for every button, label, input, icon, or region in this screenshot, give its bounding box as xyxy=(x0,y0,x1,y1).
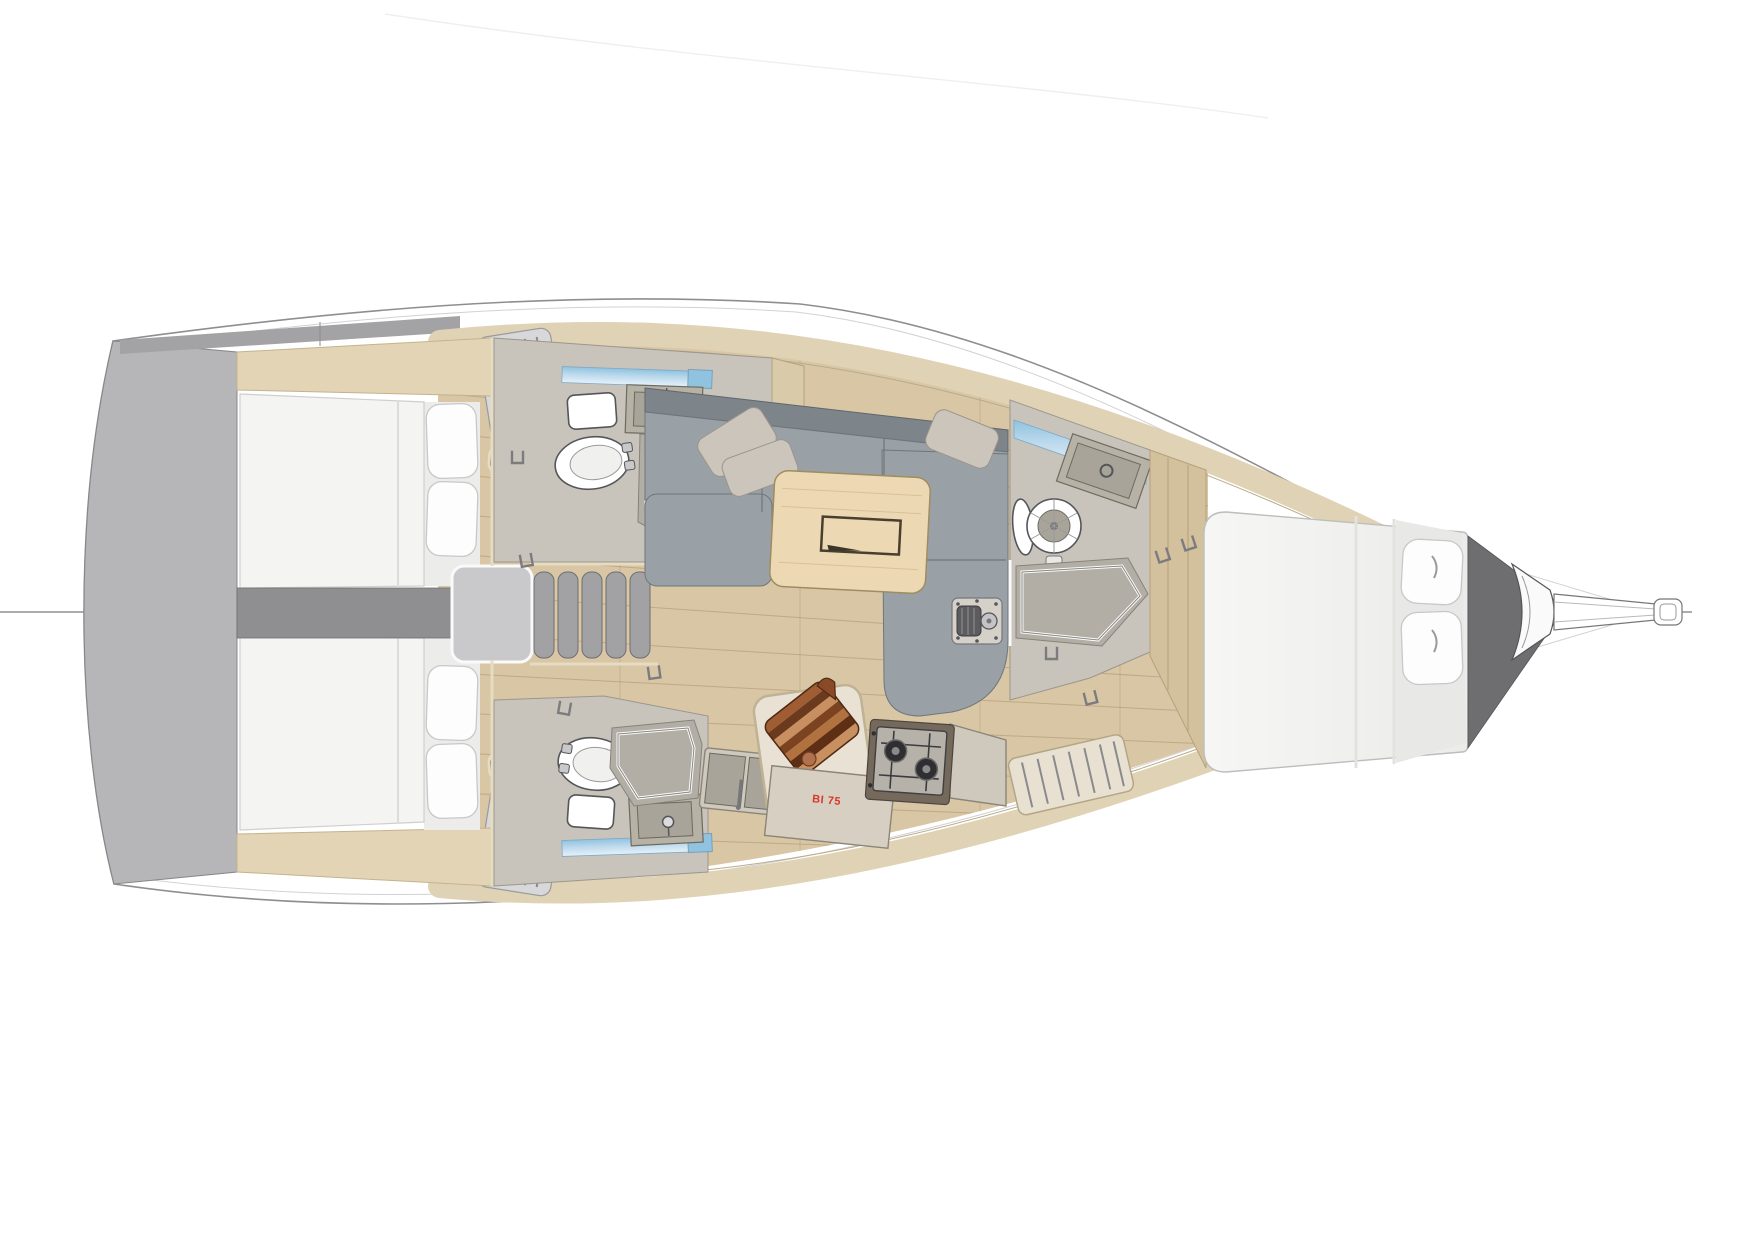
aft-stbd-berth xyxy=(240,636,424,830)
pillow xyxy=(426,481,479,557)
head-stbd-hatch xyxy=(567,794,615,829)
anchor-locker-wedge xyxy=(1468,536,1554,748)
head-port-hatch xyxy=(567,392,617,429)
pillow xyxy=(1401,611,1463,685)
pillow xyxy=(426,665,479,741)
mast-ribbed-block xyxy=(957,606,981,636)
sofa-corner-seat xyxy=(645,494,772,586)
stair-tread xyxy=(630,572,650,658)
head-forward xyxy=(1010,400,1152,705)
stair-tread xyxy=(582,572,602,658)
anchor-roller xyxy=(1654,599,1682,625)
stern-corridor xyxy=(237,588,455,638)
transom-platform xyxy=(84,341,237,884)
aft-port-berth xyxy=(240,394,424,588)
mast-step-fitting xyxy=(952,598,1002,644)
head-port-window-bright xyxy=(688,370,713,389)
galley-stove xyxy=(865,719,954,805)
pillow xyxy=(1400,538,1463,605)
pillow xyxy=(426,403,479,479)
stair-tread xyxy=(606,572,626,658)
companionway-landing xyxy=(452,566,532,662)
bow-area xyxy=(1468,536,1682,748)
stair-tread xyxy=(534,572,554,658)
companionway-stairs xyxy=(530,564,658,664)
floorplan-svg: BI 75 xyxy=(0,0,1754,1240)
pillow xyxy=(426,743,479,819)
forward-cabin-berth xyxy=(1204,512,1468,772)
stair-tread xyxy=(558,572,578,658)
bowsprit xyxy=(1554,594,1656,630)
counter-drain xyxy=(802,752,816,766)
faint-deck-arc xyxy=(385,14,1268,118)
floorplan-stage: BI 75 xyxy=(0,0,1754,1240)
saloon-table xyxy=(769,470,931,594)
faucet xyxy=(662,816,674,828)
